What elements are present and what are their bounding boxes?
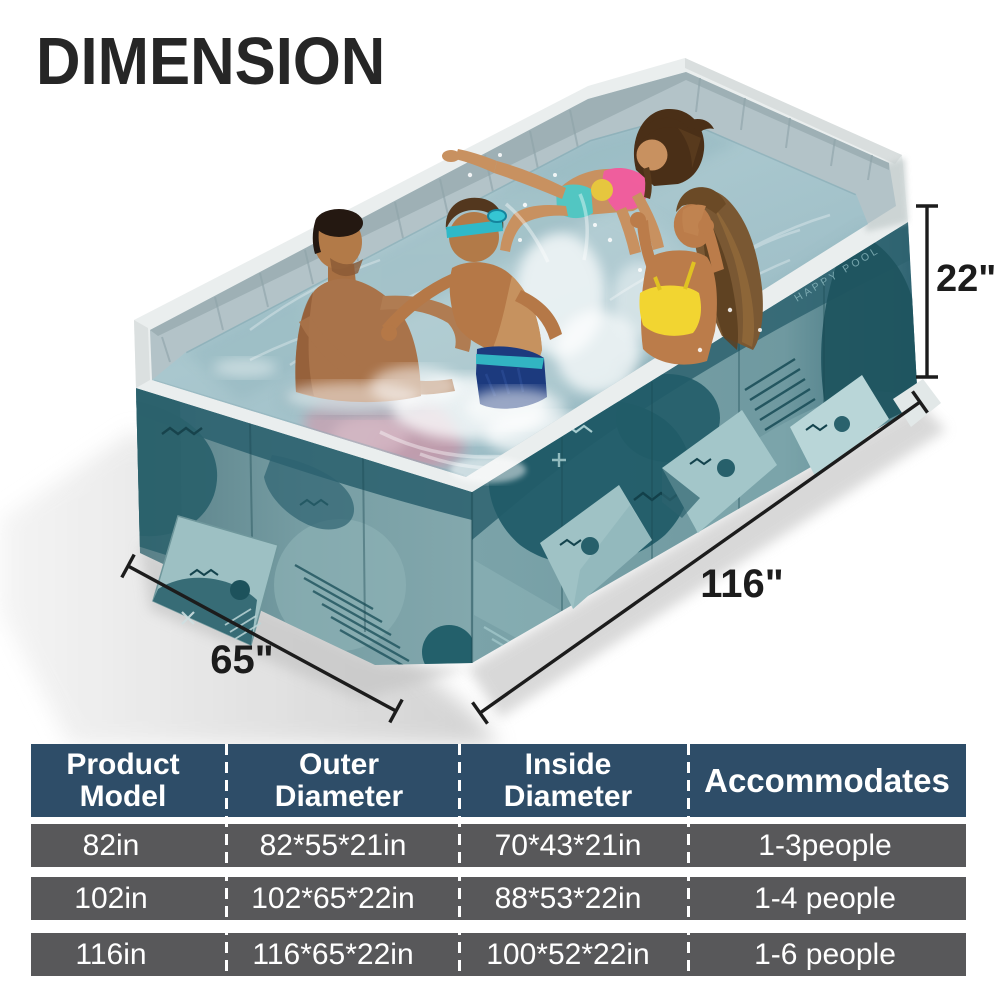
svg-text:22": 22" [936, 258, 996, 300]
svg-text:65": 65" [210, 638, 273, 682]
svg-text:116": 116" [700, 562, 784, 606]
